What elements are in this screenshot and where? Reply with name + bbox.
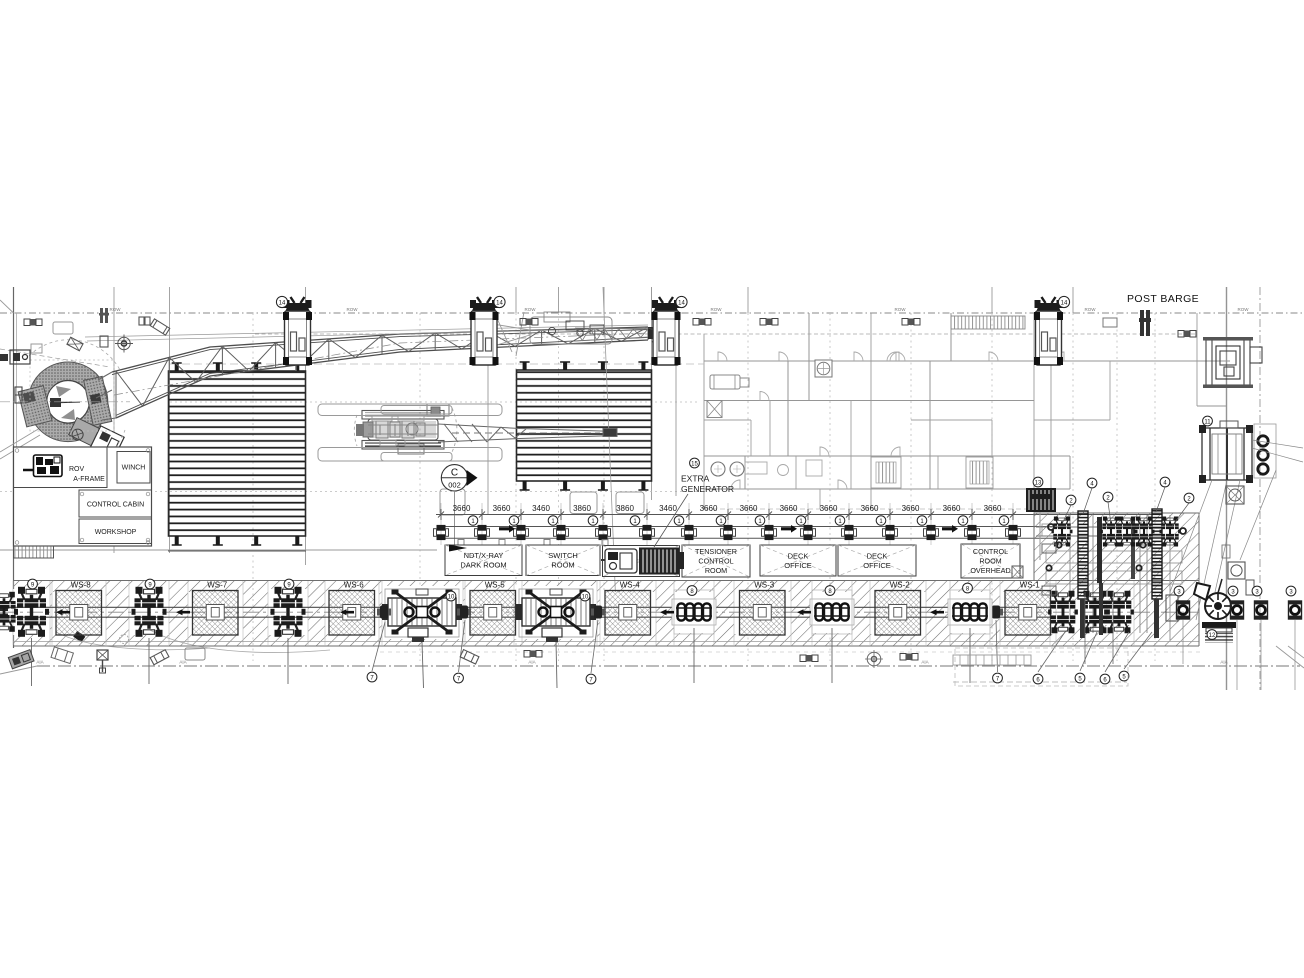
svg-text:TENSIONER: TENSIONER	[695, 547, 737, 556]
svg-text:ROW: ROW	[1085, 307, 1097, 312]
svg-text:WS-1: WS-1	[1020, 581, 1041, 590]
svg-text:15: 15	[691, 461, 698, 467]
svg-text:3660: 3660	[493, 504, 511, 513]
svg-text:ROV: ROV	[69, 466, 85, 473]
svg-text:NDT/X-RAY: NDT/X-RAY	[464, 551, 504, 560]
svg-text:ROOM: ROOM	[979, 557, 1001, 566]
svg-text:AIA: AIA	[179, 660, 186, 665]
svg-text:CONTROL: CONTROL	[973, 547, 1008, 556]
svg-text:WS-5: WS-5	[485, 581, 506, 590]
svg-text:EXTRA: EXTRA	[681, 474, 710, 484]
svg-text:GENERATOR: GENERATOR	[681, 484, 734, 494]
svg-text:AIA: AIA	[36, 660, 43, 665]
svg-text:3660: 3660	[902, 504, 920, 513]
svg-text:3660: 3660	[984, 504, 1002, 513]
svg-text:CONTROL CABIN: CONTROL CABIN	[87, 502, 144, 509]
svg-text:AIA: AIA	[921, 660, 928, 665]
svg-text:ROOM: ROOM	[551, 561, 574, 570]
svg-text:WS-8: WS-8	[71, 581, 92, 590]
svg-text:3660: 3660	[453, 504, 471, 513]
svg-text:14: 14	[1061, 300, 1068, 306]
svg-text:14: 14	[678, 300, 685, 306]
svg-text:ROW: ROW	[1238, 307, 1250, 312]
svg-text:AIA: AIA	[528, 660, 535, 665]
svg-text:AIA: AIA	[1220, 660, 1227, 665]
svg-text:3660: 3660	[700, 504, 718, 513]
svg-text:WS-3: WS-3	[754, 581, 775, 590]
svg-text:12: 12	[1209, 633, 1216, 639]
svg-text:11: 11	[1204, 419, 1211, 425]
svg-text:WS-6: WS-6	[344, 581, 365, 590]
svg-text:A-FRAME: A-FRAME	[73, 476, 105, 483]
svg-text:ROW: ROW	[895, 307, 907, 312]
svg-text:C: C	[451, 468, 458, 479]
svg-text:3860: 3860	[573, 504, 591, 513]
svg-text:ROW: ROW	[110, 307, 122, 312]
svg-text:3660: 3660	[943, 504, 961, 513]
svg-text:DARK ROOM: DARK ROOM	[460, 561, 506, 570]
svg-text:WORKSHOP: WORKSHOP	[95, 529, 137, 536]
svg-text:3860: 3860	[616, 504, 634, 513]
svg-text:OFFICE: OFFICE	[863, 561, 891, 570]
svg-text:DECK: DECK	[788, 551, 809, 560]
svg-text:13: 13	[1035, 480, 1042, 486]
svg-text:POST BARGE: POST BARGE	[1127, 293, 1199, 305]
svg-text:WS-2: WS-2	[890, 581, 911, 590]
svg-text:002: 002	[448, 481, 461, 490]
svg-text:3460: 3460	[532, 504, 550, 513]
svg-text:14: 14	[496, 300, 503, 306]
svg-text:ROW: ROW	[711, 307, 723, 312]
svg-text:OFFICE: OFFICE	[784, 561, 812, 570]
svg-text:ROW: ROW	[525, 307, 537, 312]
svg-text:3660: 3660	[861, 504, 879, 513]
svg-text:SWITCH: SWITCH	[548, 551, 578, 560]
svg-text:10: 10	[448, 594, 455, 600]
svg-text:WS-4: WS-4	[620, 581, 641, 590]
svg-text:14: 14	[279, 300, 286, 306]
svg-text:3660: 3660	[780, 504, 798, 513]
svg-text:3460: 3460	[659, 504, 677, 513]
svg-text:ROW: ROW	[347, 307, 359, 312]
svg-text:10: 10	[582, 594, 589, 600]
svg-text:CONTROL: CONTROL	[698, 557, 733, 566]
svg-text:DECK: DECK	[867, 551, 888, 560]
svg-text:3660: 3660	[820, 504, 838, 513]
svg-text:WS-7: WS-7	[207, 581, 228, 590]
svg-text:3660: 3660	[740, 504, 758, 513]
svg-text:ROOM: ROOM	[705, 566, 727, 575]
svg-text:OVERHEAD: OVERHEAD	[970, 566, 1010, 575]
svg-text:WINCH: WINCH	[122, 465, 146, 472]
